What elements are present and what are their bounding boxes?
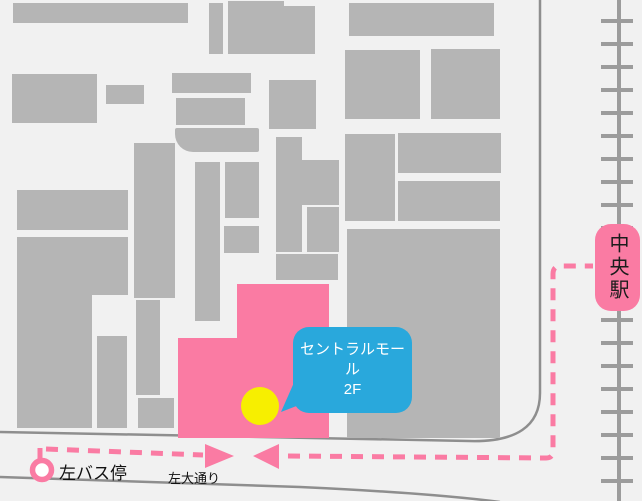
destination-marker-icon <box>241 387 279 425</box>
destination-callout: セントラルモール 2F <box>293 327 412 413</box>
destination-name: セントラルモール <box>293 340 412 380</box>
station-badge: 中央駅 <box>595 224 640 311</box>
arrow-right-icon <box>205 444 234 468</box>
route-overlay <box>0 0 642 501</box>
arrow-left-icon <box>253 444 279 469</box>
street-label: 左大通り <box>168 468 220 487</box>
access-map: セントラルモール 2F 中央駅 左バス停 左大通り <box>0 0 642 501</box>
bus-stop-label: 左バス停 <box>59 459 127 484</box>
bus-route-dashed-line <box>46 449 203 455</box>
station-name: 中央駅 <box>603 233 632 302</box>
destination-floor: 2F <box>344 380 362 400</box>
bus-stop-icon <box>33 461 52 480</box>
